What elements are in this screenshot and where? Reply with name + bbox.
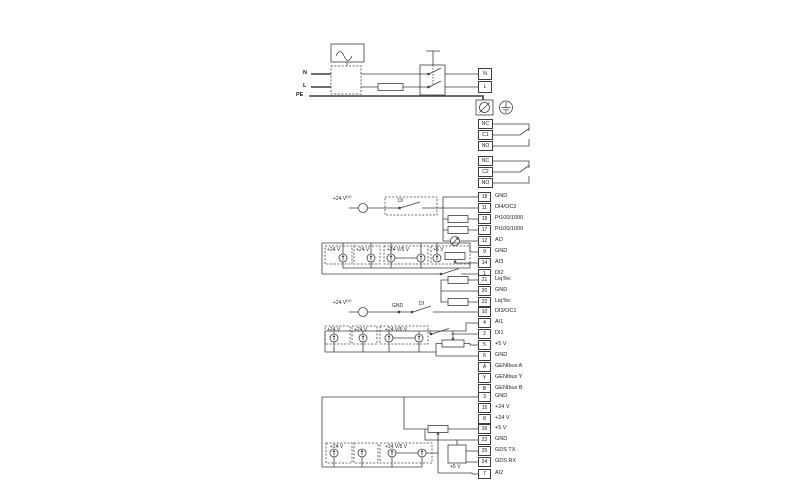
terminal-label-7: AI2 <box>495 471 503 477</box>
liqtec-wiring <box>441 277 478 306</box>
terminal-box-17: 17 <box>478 225 491 235</box>
ai2-box3-label: +24 V/5 V <box>385 445 407 450</box>
terminal-label-B: GENIbus B <box>495 386 523 392</box>
terminal-n: N <box>478 68 492 80</box>
di3-wiring <box>349 306 478 317</box>
terminal-label-17: Pt100/1000 <box>495 227 523 233</box>
supply-terminal-icon <box>359 204 368 213</box>
terminal-box-18: 18 <box>478 192 491 202</box>
terminal-box-4: 4 <box>478 318 491 328</box>
terminal-label-4: AI1 <box>495 320 503 326</box>
terminal-box-9: 9 <box>478 247 491 257</box>
terminal-label-25: GDS TX <box>495 448 515 454</box>
potentiometer-symbol <box>428 426 448 433</box>
terminal-label-20: GND <box>495 288 507 294</box>
earth-icon <box>500 101 513 114</box>
terminal-box-25: 25 <box>478 446 491 456</box>
supply-terminal-icon <box>359 308 368 317</box>
mains-wiring <box>361 51 478 95</box>
terminal-box-NC: NC <box>478 119 493 129</box>
terminal-box-7: 7 <box>478 469 491 479</box>
terminal-box-A: A <box>478 362 491 372</box>
di3-di-label: DI <box>419 302 424 307</box>
terminal-label-18: GND <box>495 194 507 200</box>
ai3-box4-label: +5 V <box>433 248 443 253</box>
terminal-label-8: +24 V <box>495 416 510 422</box>
gds-sensor-box <box>448 445 466 463</box>
ai1-box2-label: +24 V <box>354 328 367 333</box>
terminal-box-C1: C1 <box>478 130 493 140</box>
relay-contact-symbols <box>493 124 529 183</box>
ai2-box1-label: +24 V <box>330 445 343 450</box>
supply-l-label: L <box>303 84 306 90</box>
terminal-box-10: 10 <box>478 307 491 317</box>
terminal-label-9: GND <box>495 249 507 255</box>
ai3-box3-label: +24 V/5 V <box>387 248 409 253</box>
terminal-box-NO: NO <box>478 141 493 151</box>
terminal-label-15: +24 V <box>495 405 510 411</box>
potentiometer-symbol <box>442 340 464 347</box>
terminal-label-10: DI3/OC1 <box>495 309 516 315</box>
terminal-label-11: DI4/OC2 <box>495 205 516 211</box>
terminal-label-23: GND <box>495 437 507 443</box>
terminal-label-2: DI1 <box>495 331 504 337</box>
di4-supply-label: +24 VDC <box>333 197 352 202</box>
di4-di-label: DI <box>398 199 403 204</box>
terminal-label-24: GDS RX <box>495 459 516 465</box>
supply-n-label: N <box>303 71 307 77</box>
ac-supply-icon <box>331 44 364 66</box>
ai1-box1-label: +24 V <box>327 328 340 333</box>
di3-supply-label: +24 VDC <box>333 301 352 306</box>
terminal-box-Y: Y <box>478 373 491 383</box>
terminal-box-24: 24 <box>478 457 491 467</box>
terminal-box-NO: NO <box>478 178 493 188</box>
terminal-label-5: +5 V <box>495 342 506 348</box>
terminal-box-12: 12 <box>478 236 491 246</box>
fuse-symbol <box>378 84 403 91</box>
terminal-box-11: 11 <box>478 203 491 213</box>
terminal-label-26: +5 V <box>495 426 506 432</box>
pt100-sensor-symbol <box>448 216 468 223</box>
terminal-label-22: LiqTec <box>495 299 511 305</box>
pt100-sensor-symbol <box>448 227 468 234</box>
liqtec-sensor-symbol <box>448 277 468 284</box>
ai1-box3-label: +24 V/5 V <box>385 328 407 333</box>
terminal-l: L <box>478 81 492 93</box>
terminal-label-14: AI3 <box>495 260 503 266</box>
main-switch-box <box>420 65 445 95</box>
pe-screw-icon <box>476 100 493 115</box>
terminal-box-21: 21 <box>478 275 491 285</box>
ai3-box2-label: +24 V <box>356 248 369 253</box>
ai1-source-boxes <box>325 326 428 344</box>
terminal-label-6: GND <box>495 353 507 359</box>
potentiometer-symbol <box>445 253 465 260</box>
di4-pt100-wiring <box>349 197 478 246</box>
signal-source-icons <box>330 254 441 457</box>
terminal-box-2: 2 <box>478 329 491 339</box>
terminal-label-12: AO <box>495 238 503 244</box>
ai3-box1-label: +24 V <box>327 248 340 253</box>
wiring-diagram: N L PE N L +24 VDC DI +24 V +24 V +24 V/… <box>0 0 800 492</box>
di4-switch-box <box>385 197 437 215</box>
terminal-box-20: 20 <box>478 286 491 296</box>
terminal-label-Y: GENIbus Y <box>495 375 522 381</box>
switch-actuator <box>426 51 440 65</box>
terminal-box-23: 23 <box>478 435 491 445</box>
ai2-gds-wiring <box>322 397 478 474</box>
terminal-box-8: 8 <box>478 414 491 424</box>
terminal-box-15: 15 <box>478 403 491 413</box>
terminal-box-5: 5 <box>478 340 491 350</box>
terminal-box-14: 14 <box>478 258 491 268</box>
wiring-lines <box>0 0 800 492</box>
supply-pe-label: PE <box>296 93 303 99</box>
terminal-box-C2: C2 <box>478 167 493 177</box>
liqtec-sensor-symbol <box>448 299 468 306</box>
terminal-box-19: 19 <box>478 214 491 224</box>
terminal-box-3: 3 <box>478 392 491 402</box>
terminal-box-NC: NC <box>478 156 493 166</box>
terminal-label-19: Pt100/1000 <box>495 216 523 222</box>
terminal-box-26: 26 <box>478 424 491 434</box>
terminal-label-A: GENIbus A <box>495 364 522 370</box>
terminal-box-22: 22 <box>478 297 491 307</box>
di3-gnd-label: GND <box>392 304 403 309</box>
emc-filter-box <box>331 66 361 94</box>
gds-supply-label: +5 V <box>450 465 460 470</box>
terminal-box-6: 6 <box>478 351 491 361</box>
terminal-label-3: GND <box>495 394 507 400</box>
terminal-label-21: LiqTec <box>495 277 511 283</box>
